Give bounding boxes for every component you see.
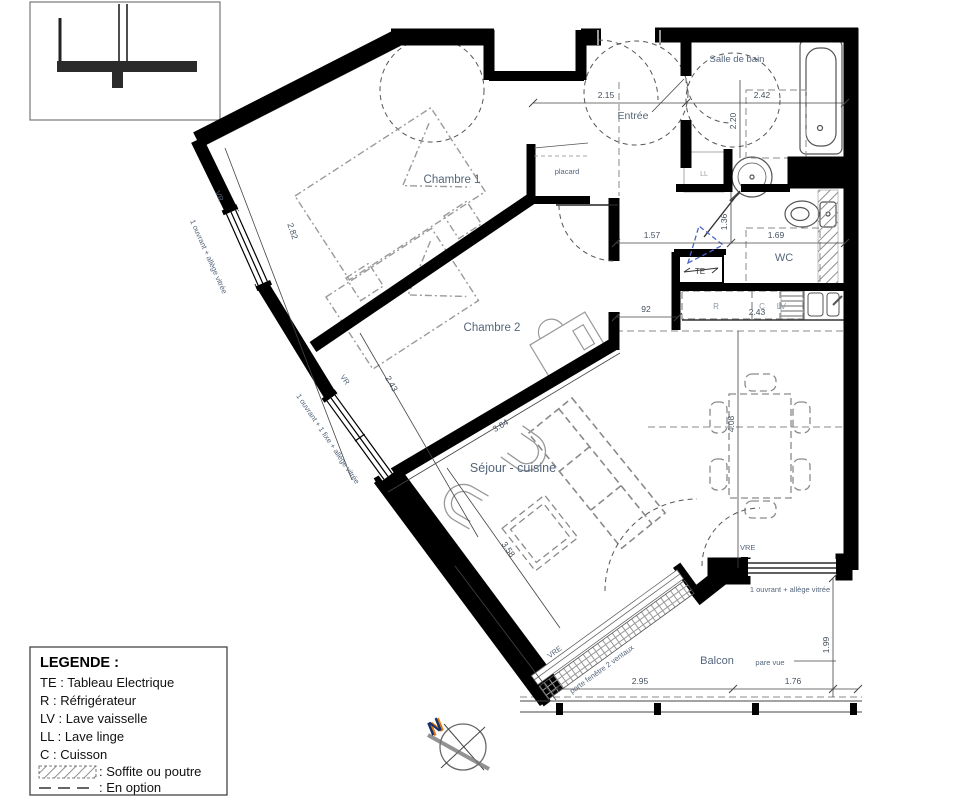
- dim-sdb-width: 2.42: [754, 90, 771, 100]
- dim-kitchen-offset: 92: [641, 304, 651, 314]
- clearance-circle-sdb: [686, 53, 780, 147]
- coffee-table: [502, 495, 578, 571]
- dim-sejour-b: 3.58: [500, 540, 518, 560]
- pare-vue-label: pare vue: [755, 658, 784, 667]
- kitchen-sink: [804, 290, 845, 320]
- room-label-balcon: Balcon: [700, 655, 734, 667]
- furniture-layer: [295, 108, 810, 623]
- dining-chair: [745, 374, 776, 391]
- electrical-panel: TE: [679, 256, 723, 283]
- dim-wc-a: 1.57: [644, 230, 661, 240]
- appliance-label-r: R: [713, 302, 719, 311]
- room-label-chambre2: Chambre 2: [464, 322, 521, 334]
- window-note-1: 1 ouvrant + allège vitrée: [188, 218, 229, 295]
- appliance-label-c: C: [759, 302, 765, 311]
- room-label-sejour: Séjour - cuisine: [470, 461, 556, 475]
- floor-plan-page: TE: [0, 0, 959, 800]
- railing-post: [752, 703, 759, 715]
- dim-chambre1: 2.82: [285, 222, 300, 241]
- room-label-wc: WC: [775, 252, 793, 264]
- legend-item-c: C : Cuisson: [40, 747, 107, 762]
- window-label-vre2: VRE: [740, 543, 755, 552]
- dim-balcon-b: 1.76: [785, 676, 802, 686]
- dim-sejour-c: 4.08: [726, 415, 736, 432]
- room-label-sdb: Salle de bain: [710, 54, 765, 65]
- dim-entree-width: 2.15: [598, 90, 615, 100]
- dim-wc-c: 1.69: [768, 230, 785, 240]
- labels-layer: Chambre 1 Chambre 2 Séjour - cuisine Ent…: [188, 54, 830, 696]
- legend-item-lv: LV : Lave vaisselle: [40, 711, 147, 726]
- walls: [197, 28, 858, 697]
- dining-table-set: [710, 374, 810, 518]
- appliance-label-lv: LV: [777, 302, 787, 311]
- wall-top-left-diagonal: [197, 37, 399, 140]
- railing-post: [850, 703, 857, 715]
- dim-wc-b: 1.36: [719, 213, 729, 230]
- legend-option-label: : En option: [99, 780, 161, 795]
- dim-sdb-height: 2.20: [728, 112, 738, 129]
- key-plan-wing: [57, 61, 197, 72]
- legend-item-te: TE : Tableau Electrique: [40, 675, 174, 690]
- te-label: TE: [695, 267, 705, 276]
- key-plan-inset: [30, 2, 220, 120]
- window-sejour-bottom: [741, 557, 836, 578]
- dining-chair: [710, 402, 727, 433]
- north-compass: N N: [423, 714, 489, 770]
- washbasin: [730, 157, 772, 201]
- legend-soffite-label: : Soffite ou poutre: [99, 764, 201, 779]
- room-label-entree: Entrée: [618, 110, 649, 122]
- window-note-2: 1 ouvrant + 1 fixe + allège vitrée: [294, 392, 361, 486]
- chambre2-door-arc: [559, 205, 615, 261]
- wall-sdb-wc: [788, 157, 844, 188]
- room-label-placard: placard: [555, 167, 580, 176]
- legend-soffite-sample: [39, 766, 96, 778]
- window-swing-arc: [702, 508, 760, 566]
- dining-chair: [745, 501, 776, 518]
- dining-chair: [793, 459, 810, 490]
- sliding-door-balcony: [523, 563, 702, 707]
- entree-leader-line: [652, 79, 684, 112]
- dim-balcon-a: 2.95: [632, 676, 649, 686]
- soffite-hatch-wc: [818, 190, 838, 285]
- window-note-3: 1 ouvrant + allège vitrée: [750, 585, 830, 594]
- dining-chair: [710, 459, 727, 490]
- dining-chair: [793, 402, 810, 433]
- legend-heading: LEGENDE :: [40, 655, 119, 671]
- clearance-circle-chambre1: [380, 38, 484, 142]
- window-label-vr2: VR: [338, 373, 352, 387]
- sdb-door-arc: [686, 78, 731, 123]
- railing-post: [556, 703, 563, 715]
- nightstand: [346, 263, 383, 300]
- windows-layer: [222, 204, 836, 706]
- dim-chambre2: 2.43: [383, 374, 400, 394]
- legend-item-ll: LL : Lave linge: [40, 729, 124, 744]
- dim-balcon-c: 1.99: [821, 636, 831, 653]
- floor-plan-drawing: TE: [0, 0, 959, 800]
- window-chambre1: [222, 204, 272, 291]
- legend-item-r: R : Réfrigérateur: [40, 693, 137, 708]
- legend-box: LEGENDE : TE : Tableau Electrique R : Ré…: [30, 647, 227, 795]
- railing-post: [654, 703, 661, 715]
- room-label-chambre1: Chambre 1: [424, 174, 481, 186]
- appliance-label-ll: LL: [700, 171, 708, 178]
- wall-sejour-thick: [386, 474, 552, 697]
